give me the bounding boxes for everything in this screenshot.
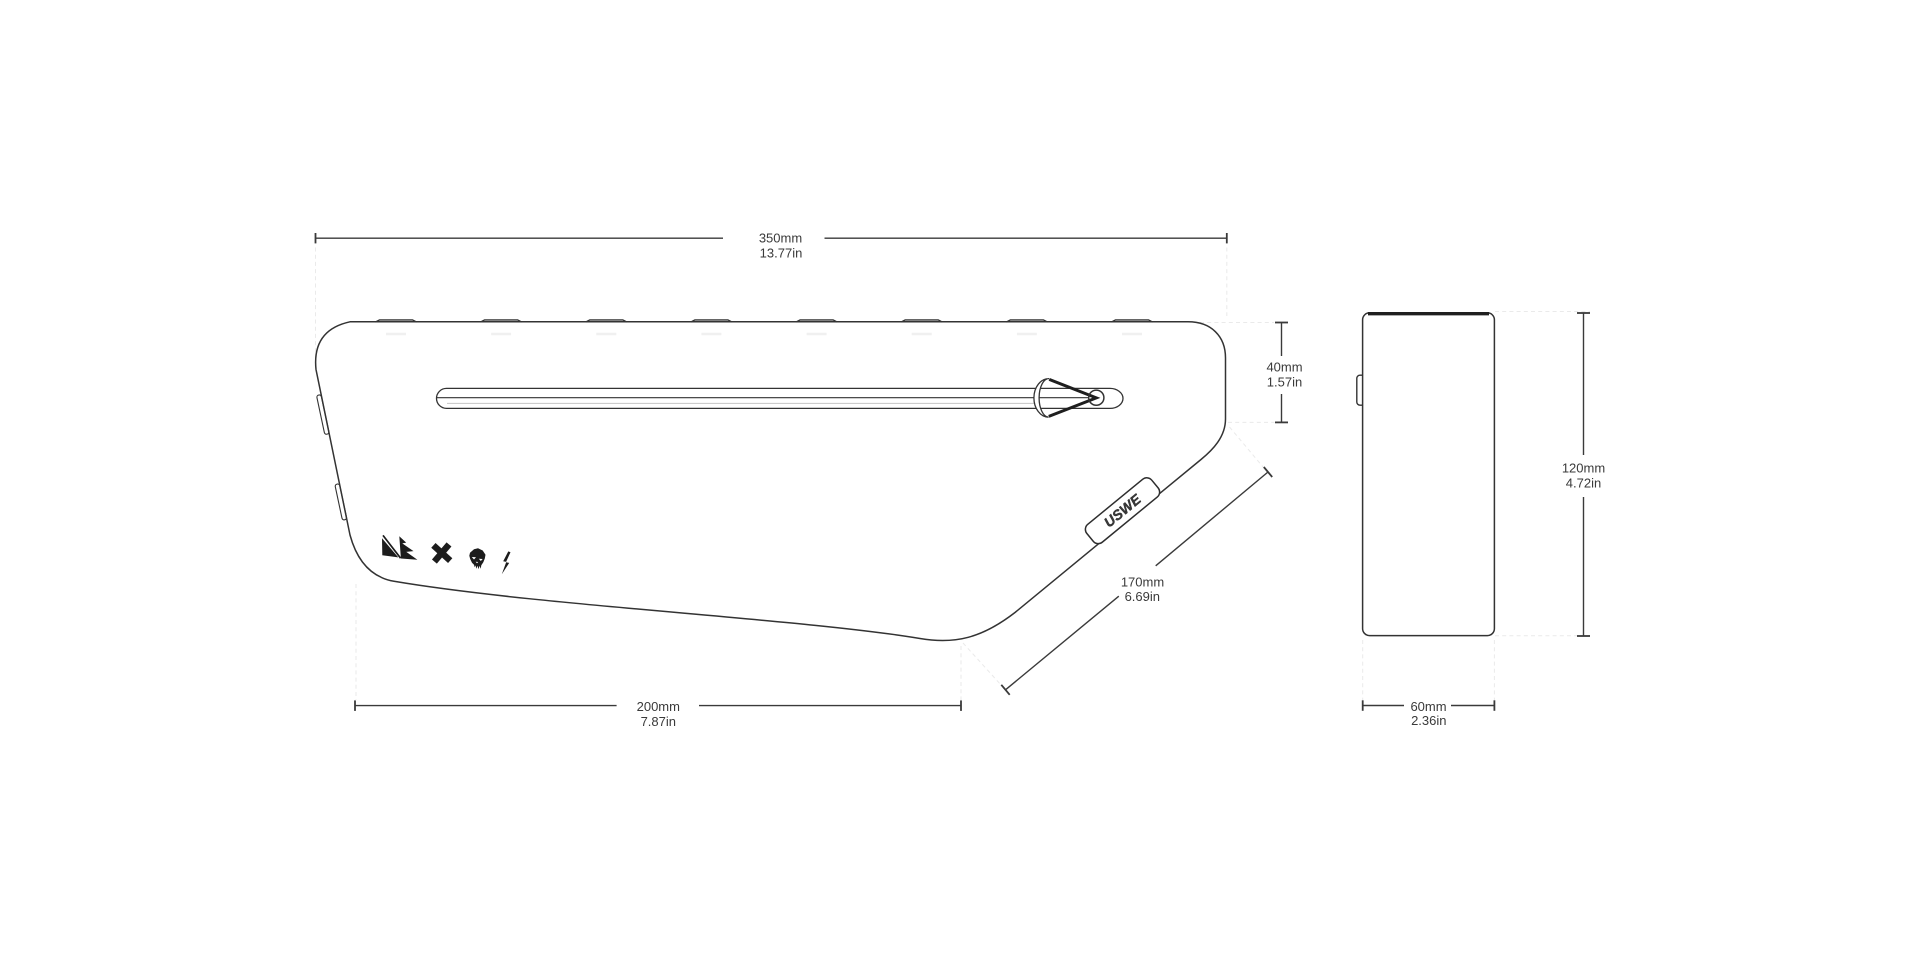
- svg-text:6.69in: 6.69in: [1125, 589, 1160, 604]
- svg-text:1.57in: 1.57in: [1267, 375, 1302, 390]
- svg-text:60mm: 60mm: [1410, 699, 1446, 714]
- svg-text:120mm: 120mm: [1562, 461, 1605, 476]
- svg-text:2.36in: 2.36in: [1411, 713, 1446, 728]
- svg-text:200mm: 200mm: [637, 699, 680, 714]
- svg-text:13.77in: 13.77in: [760, 246, 803, 261]
- svg-text:7.87in: 7.87in: [641, 714, 676, 729]
- svg-text:350mm: 350mm: [759, 231, 802, 246]
- svg-text:40mm: 40mm: [1266, 359, 1302, 374]
- svg-text:4.72in: 4.72in: [1566, 476, 1601, 491]
- svg-text:170mm: 170mm: [1121, 575, 1164, 590]
